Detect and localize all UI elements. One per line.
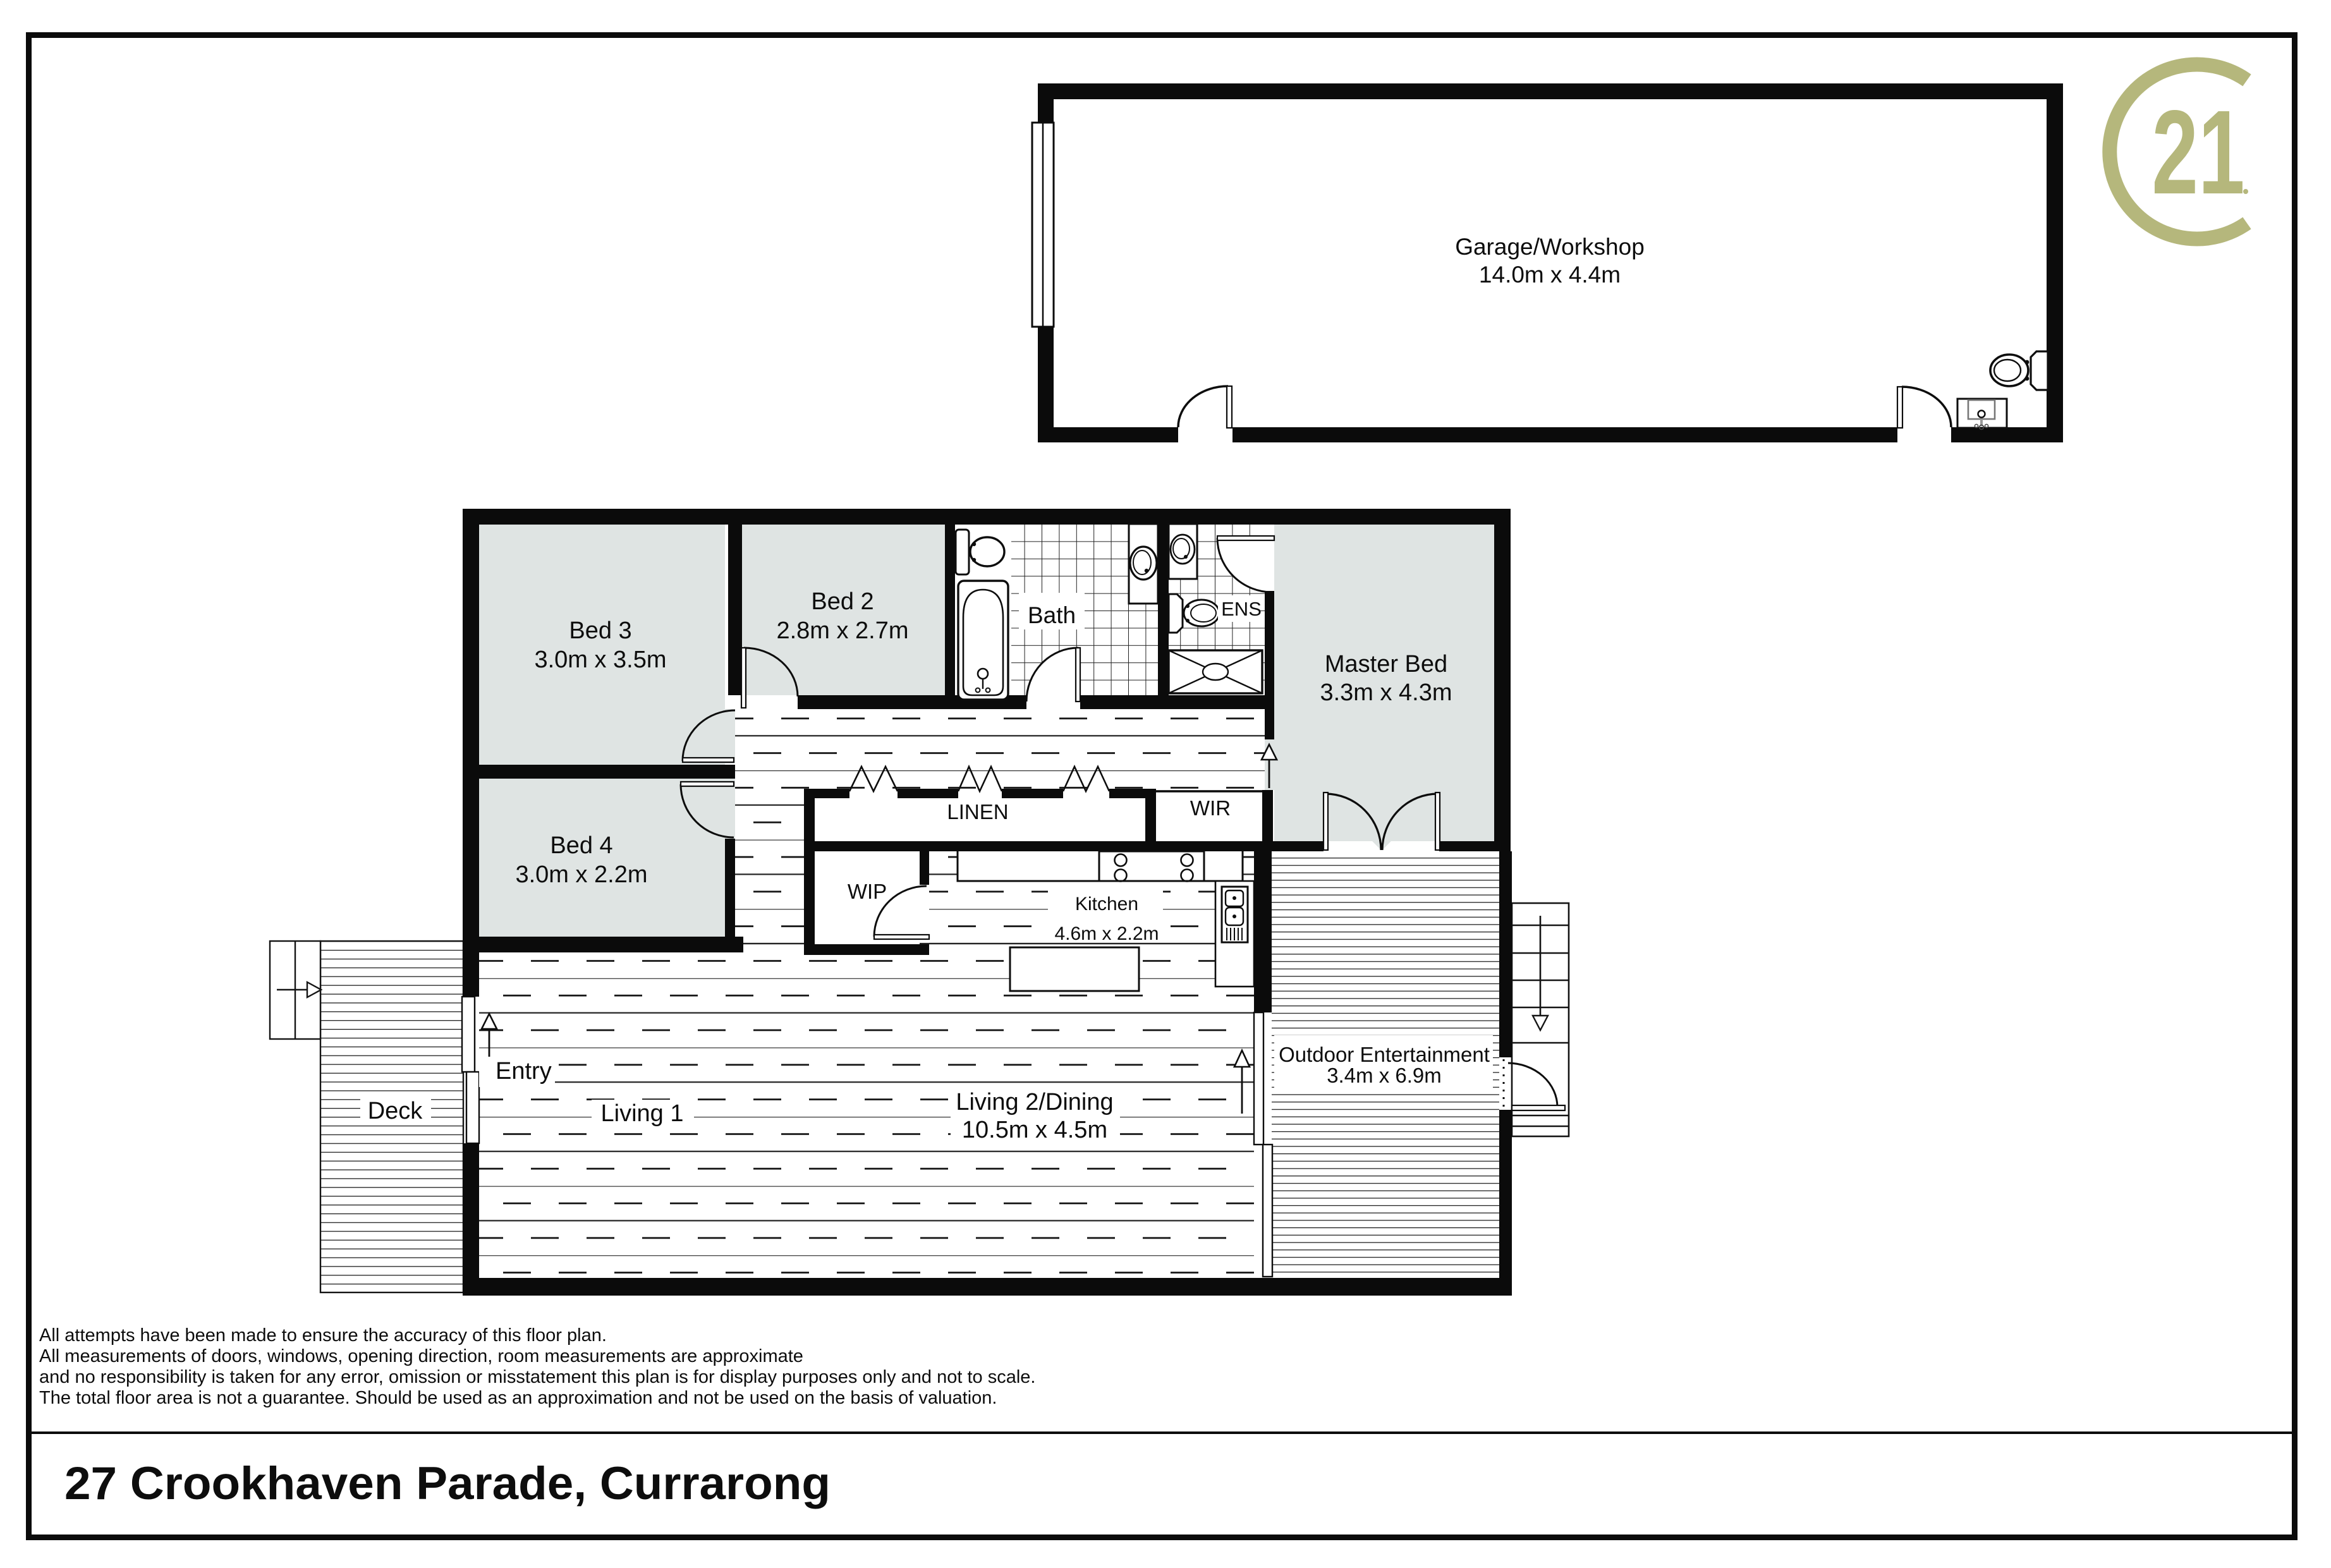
- svg-text:Kitchen: Kitchen: [1075, 894, 1138, 915]
- svg-text:Master Bed: Master Bed: [1325, 651, 1447, 678]
- svg-text:Deck: Deck: [368, 1098, 423, 1124]
- svg-text:2.8m x 2.7m: 2.8m x 2.7m: [776, 617, 908, 644]
- svg-text:Bed 2: Bed 2: [811, 588, 873, 615]
- svg-text:All measurements of doors, win: All measurements of doors, windows, open…: [39, 1346, 803, 1366]
- svg-text:27 Crookhaven Parade, Curraron: 27 Crookhaven Parade, Currarong: [64, 1458, 831, 1509]
- svg-text:LINEN: LINEN: [947, 800, 1008, 824]
- svg-text:3.0m x 2.2m: 3.0m x 2.2m: [515, 861, 647, 888]
- svg-text:4.6m x 2.2m: 4.6m x 2.2m: [1054, 923, 1159, 944]
- svg-text:Garage/Workshop: Garage/Workshop: [1455, 234, 1645, 260]
- svg-text:Living 2/Dining: Living 2/Dining: [956, 1089, 1113, 1115]
- svg-text:WIP: WIP: [848, 880, 887, 903]
- svg-text:10.5m x 4.5m: 10.5m x 4.5m: [962, 1117, 1107, 1143]
- svg-text:3.0m x 3.5m: 3.0m x 3.5m: [534, 647, 666, 673]
- svg-text:ENS: ENS: [1221, 598, 1262, 620]
- svg-text:Entry: Entry: [496, 1058, 552, 1085]
- svg-text:14.0m x 4.4m: 14.0m x 4.4m: [1479, 262, 1621, 288]
- svg-text:Bed 3: Bed 3: [569, 617, 631, 644]
- svg-text:All attempts have been made to: All attempts have been made to ensure th…: [39, 1325, 607, 1346]
- svg-text:3.3m x 4.3m: 3.3m x 4.3m: [1320, 679, 1452, 706]
- svg-text:WIR: WIR: [1190, 796, 1231, 820]
- svg-text:Bath: Bath: [1028, 602, 1076, 628]
- svg-text:Living 1: Living 1: [601, 1100, 684, 1127]
- svg-text:3.4m x 6.9m: 3.4m x 6.9m: [1327, 1064, 1442, 1087]
- svg-text:Bed 4: Bed 4: [550, 832, 612, 859]
- svg-text:The total floor area is not a: The total floor area is not a guarantee.…: [39, 1388, 997, 1408]
- svg-text:and no responsibility is taken: and no responsibility is taken for any e…: [39, 1367, 1035, 1387]
- svg-text:Outdoor Entertainment: Outdoor Entertainment: [1279, 1043, 1490, 1066]
- svg-text:21: 21: [2151, 85, 2244, 219]
